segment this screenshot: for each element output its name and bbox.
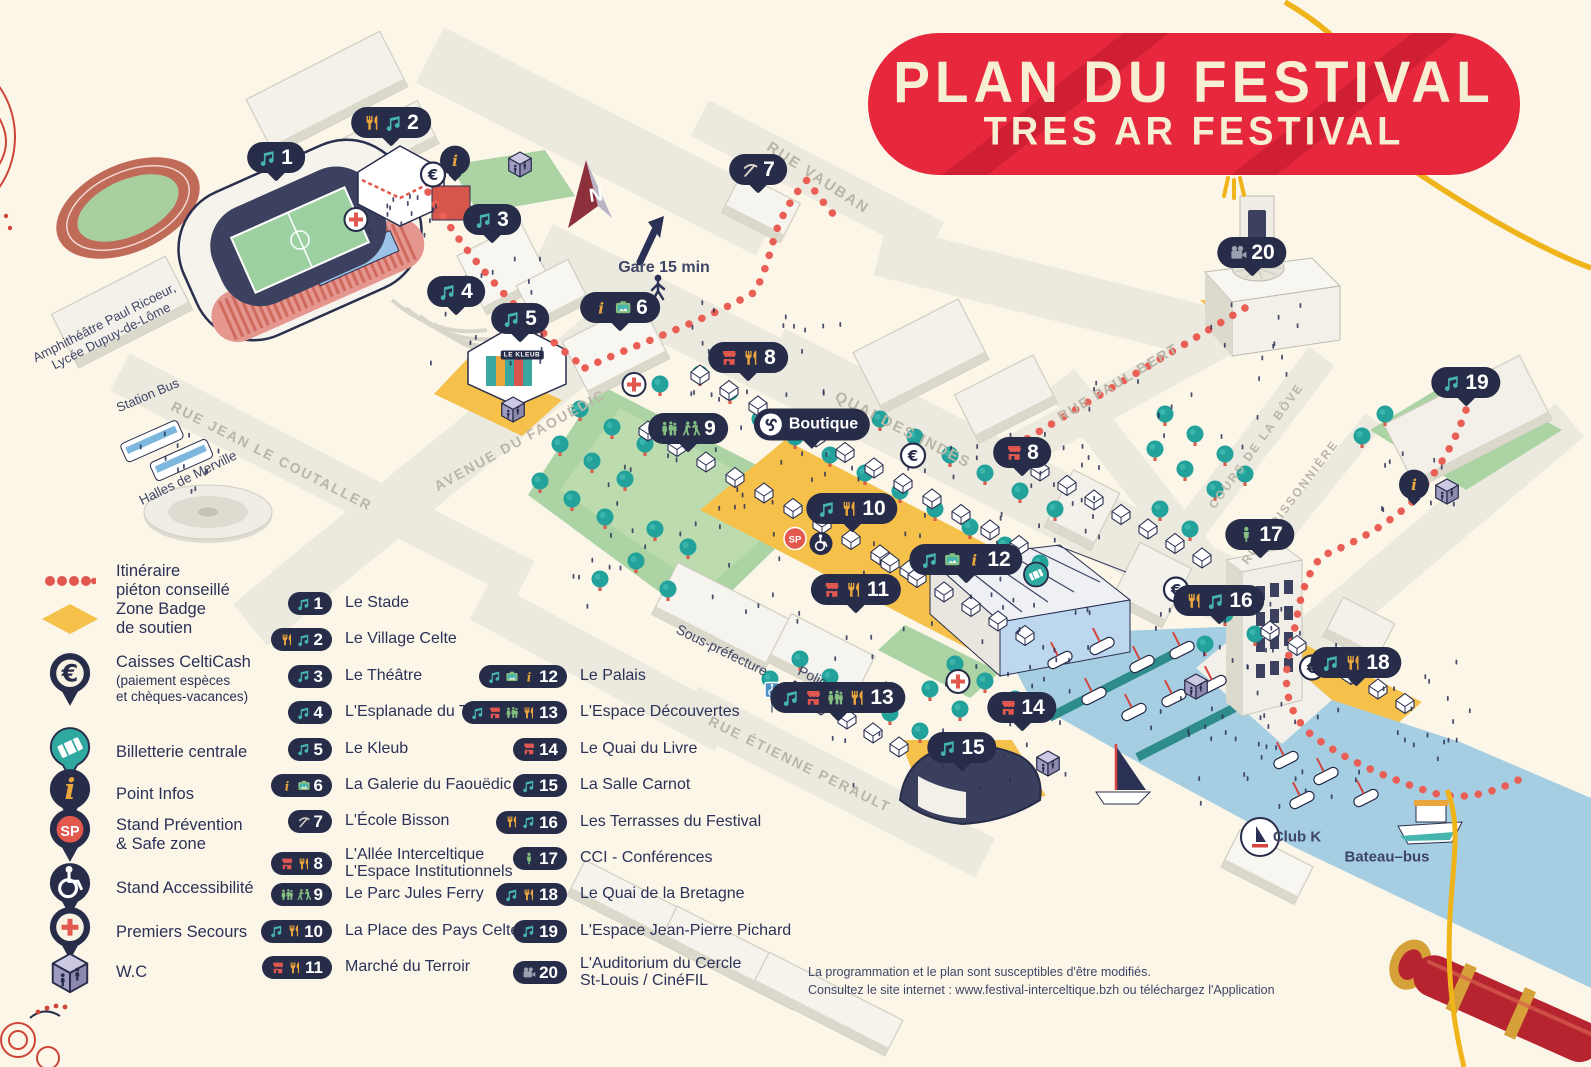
location-pill: 16 <box>496 811 567 834</box>
location-number: 3 <box>314 668 323 685</box>
location-label: Le Quai du Livre <box>580 741 697 758</box>
info-icon: i <box>280 779 294 793</box>
people-icon <box>660 420 678 438</box>
marker-number: 20 <box>1251 242 1274 263</box>
map-marker-18: 18 <box>1310 647 1401 678</box>
map-marker-2: 2 <box>351 107 431 138</box>
location-number: 5 <box>314 741 323 758</box>
location-number: 8 <box>314 855 323 872</box>
music-icon <box>782 689 800 707</box>
location-list-item-19: 19L'Espace Jean-Pierre Pichard <box>455 920 791 943</box>
title-line2: TRES AR FESTIVAL <box>984 109 1405 154</box>
marker-number: 7 <box>763 159 775 180</box>
gallery-icon <box>614 299 632 317</box>
legend-item-sp-pin: SPStand Prévention& Safe zone <box>38 808 243 862</box>
map-badge-wc <box>505 150 535 185</box>
music-icon <box>818 500 836 518</box>
shop-icon <box>720 349 738 367</box>
place-label: Bateau–bus <box>1344 848 1429 865</box>
legend-label: Itinérairepiéton conseillé <box>116 562 230 601</box>
location-pill: 17 <box>513 847 567 870</box>
location-pill: 19 <box>513 920 567 943</box>
fork-icon <box>742 349 760 367</box>
svg-text:i: i <box>284 779 288 793</box>
people-icon <box>280 888 294 902</box>
legend-label: Caisses CeltiCash(paiement espèceset chè… <box>116 653 251 704</box>
shop-icon <box>488 706 502 720</box>
legend-label: Billetterie centrale <box>116 743 247 762</box>
music-icon <box>297 597 311 611</box>
location-number: 6 <box>314 777 323 794</box>
fork-icon <box>1344 654 1362 672</box>
music-icon <box>475 211 493 229</box>
music-icon <box>385 114 403 132</box>
marker-number: 16 <box>1229 590 1252 611</box>
marker-number: 8 <box>764 347 776 368</box>
legend-item-euro-pin: €Caisses CeltiCash(paiement espèceset ch… <box>38 652 251 706</box>
location-label: Le Stade <box>345 595 409 612</box>
title-banner: PLAN DU FESTIVAL TRES AR FESTIVAL <box>868 33 1520 175</box>
location-number: 1 <box>314 595 323 612</box>
svg-text:i: i <box>971 551 977 568</box>
music-icon <box>921 551 939 569</box>
location-label: Le Palais <box>580 668 646 685</box>
location-label: Marché du Terroir <box>345 959 470 976</box>
location-number: 19 <box>539 923 558 940</box>
map-marker-14: 14 <box>987 692 1056 723</box>
location-pill: 20 <box>513 961 567 984</box>
euro-pin-icon: € <box>38 652 102 706</box>
map-marker-8: 8 <box>708 342 788 373</box>
fork-icon <box>297 857 311 871</box>
info-icon: i <box>592 299 610 317</box>
people-icon <box>826 689 844 707</box>
marker-number: 3 <box>497 209 509 230</box>
gallery-icon <box>505 670 519 684</box>
location-pill: 5 <box>288 738 332 761</box>
legend-label: Point Infos <box>116 785 194 804</box>
location-list-item-18: 18Le Quai de la Bretagne <box>455 883 745 906</box>
location-pill: 1 <box>288 592 332 615</box>
place-label: Club K <box>1273 828 1321 845</box>
pickaxe-icon <box>741 161 759 179</box>
shop-icon <box>1005 444 1023 462</box>
map-marker-13: 13 <box>770 682 905 713</box>
location-number: 7 <box>314 813 323 830</box>
map-badge-wc <box>1181 672 1211 707</box>
fork-icon <box>1185 592 1203 610</box>
marker-number: 19 <box>1465 372 1488 393</box>
location-number: 20 <box>539 964 558 981</box>
location-list-item-7: 7L'École Bisson <box>246 810 449 833</box>
legend-label: Stand Prévention& Safe zone <box>116 816 243 855</box>
location-pill: 2 <box>271 628 332 651</box>
marker-number: 12 <box>987 549 1010 570</box>
location-label: La Salle Carnot <box>580 777 690 794</box>
people-icon <box>505 706 519 720</box>
location-list-item-2: 2Le Village Celte <box>246 628 457 651</box>
map-badge-wheel <box>809 532 833 561</box>
legend-label: Premiers Secours <box>116 923 247 942</box>
location-list-item-3: 3Le Théâtre <box>246 665 422 688</box>
svg-text:€: € <box>907 447 918 465</box>
fork-icon <box>845 581 863 599</box>
svg-text:i: i <box>1411 476 1417 493</box>
fork-icon <box>848 689 866 707</box>
location-label: Le Quai de la Bretagne <box>580 886 745 903</box>
location-number: 12 <box>539 668 558 685</box>
svg-text:SP: SP <box>789 535 802 546</box>
svg-text:i: i <box>527 670 531 684</box>
location-list-item-20: 20L'Auditorium du CercleSt-Louis / CinéF… <box>455 956 741 990</box>
map-badge-wc <box>1033 749 1063 784</box>
map-marker-15: 15 <box>927 732 996 763</box>
music-icon <box>522 779 536 793</box>
location-list-item-14: 14Le Quai du Livre <box>455 738 697 761</box>
map-marker-19: 19 <box>1431 367 1500 398</box>
svg-text:SP: SP <box>60 824 80 840</box>
music-icon <box>270 924 284 938</box>
map-marker-8: 8 <box>993 437 1051 468</box>
music-icon <box>488 670 502 684</box>
location-list-item-11: 11Marché du Terroir <box>246 956 470 979</box>
map-badge-sp: SP <box>783 527 807 556</box>
marker-number: 17 <box>1259 524 1282 545</box>
fork-icon <box>522 888 536 902</box>
place-label: Gare 15 min <box>618 259 710 277</box>
location-list-item-5: 5Le Kleub <box>246 738 408 761</box>
map-marker-11: 11 <box>811 574 901 605</box>
building-sign: LE KLEUB <box>501 351 544 360</box>
sp-pin-icon: SP <box>38 808 102 862</box>
music-icon <box>1322 654 1340 672</box>
fork-icon <box>280 633 294 647</box>
map-badge-wc <box>1432 477 1462 512</box>
gallery-icon <box>943 551 961 569</box>
filmcam-icon <box>1229 244 1247 262</box>
marker-number: 6 <box>636 297 648 318</box>
gallery-icon <box>297 779 311 793</box>
shop-icon <box>280 857 294 871</box>
location-number: 14 <box>539 741 558 758</box>
svg-text:€: € <box>427 166 438 184</box>
location-pill: 8 <box>271 852 332 875</box>
location-list-item-13: 13L'Espace Découvertes <box>455 701 740 724</box>
marker-number: 9 <box>704 418 716 439</box>
location-number: 10 <box>304 923 323 940</box>
badge-zone-icon <box>38 603 102 635</box>
map-badge-plus <box>945 669 971 700</box>
svg-text:i: i <box>65 772 76 806</box>
triskel-icon <box>759 412 783 436</box>
map-badge-wc <box>498 395 528 430</box>
marker-number: 5 <box>525 308 537 329</box>
location-number: 17 <box>539 850 558 867</box>
music-icon <box>297 706 311 720</box>
legend-label: W.C <box>116 963 147 982</box>
boutique-label: Boutique <box>789 415 858 433</box>
marker-number: 18 <box>1366 652 1389 673</box>
fork-icon <box>505 815 519 829</box>
legend-item-dotted-path: Itinérairepiéton conseillé <box>38 562 230 601</box>
marker-number: 1 <box>281 147 293 168</box>
music-icon <box>503 310 521 328</box>
location-pill: 13 <box>462 701 567 724</box>
location-pill: 7 <box>288 810 332 833</box>
location-number: 4 <box>314 704 323 721</box>
map-marker-4: 4 <box>427 276 485 307</box>
shop-icon <box>999 699 1017 717</box>
shop-icon <box>271 961 285 975</box>
location-pill: 3 <box>288 665 332 688</box>
person-icon <box>522 852 536 866</box>
location-list-item-9: 9Le Parc Jules Ferry <box>246 883 484 906</box>
map-marker-20: 20 <box>1217 237 1286 268</box>
svg-text:€: € <box>61 660 79 688</box>
location-number: 18 <box>539 886 558 903</box>
shop-icon <box>823 581 841 599</box>
shop-icon <box>804 689 822 707</box>
footer-line1: La programmation et le plan sont suscept… <box>808 963 1275 981</box>
map-marker-7: 7 <box>729 154 787 185</box>
music-icon <box>471 706 485 720</box>
location-list-item-15: 15La Salle Carnot <box>455 774 690 797</box>
marker-number: 13 <box>870 687 893 708</box>
music-icon <box>1207 592 1225 610</box>
marker-number: 10 <box>862 498 885 519</box>
marker-number: 4 <box>461 281 473 302</box>
music-icon <box>297 633 311 647</box>
festival-map-poster: N PLAN DU FESTIVAL TRES AR FESTIVAL RUE … <box>0 0 1591 1067</box>
map-marker-16: 16 <box>1173 585 1264 616</box>
fork-icon <box>287 924 301 938</box>
map-badge-plus <box>621 372 647 403</box>
location-label: Le Village Celte <box>345 631 457 648</box>
map-marker-12: i12 <box>909 544 1022 575</box>
filmcam-icon <box>522 966 536 980</box>
location-label: L'École Bisson <box>345 813 449 830</box>
location-pill: 9 <box>271 883 332 906</box>
location-label: Les Terrasses du Festival <box>580 814 761 831</box>
info-icon: i <box>965 551 983 569</box>
legend-label: Stand Accessibilité <box>116 879 254 898</box>
location-number: 15 <box>539 777 558 794</box>
map-badge-ticket <box>1023 562 1049 593</box>
footer-note: La programmation et le plan sont suscept… <box>808 963 1275 999</box>
location-label: Le Théâtre <box>345 668 422 685</box>
pickaxe-icon <box>297 815 311 829</box>
music-icon <box>505 888 519 902</box>
location-number: 16 <box>539 814 558 831</box>
svg-text:N: N <box>588 184 605 207</box>
map-marker-9: 9 <box>648 413 728 444</box>
location-number: 2 <box>314 631 323 648</box>
info-point-bubble: i <box>440 146 470 176</box>
location-pill: 18 <box>496 883 567 906</box>
location-list-item-1: 1Le Stade <box>246 592 409 615</box>
location-pill: 14 <box>513 738 567 761</box>
fork-icon <box>288 961 302 975</box>
location-list-item-12: i12Le Palais <box>455 665 646 688</box>
fork-icon <box>840 500 858 518</box>
footer-line2: Consultez le site internet : www.festiva… <box>808 981 1275 999</box>
marker-number: 8 <box>1027 442 1039 463</box>
marker-number: 11 <box>867 579 889 600</box>
svg-text:i: i <box>452 152 458 169</box>
marker-number: 14 <box>1021 697 1044 718</box>
dotted-path-icon <box>38 574 102 588</box>
map-marker-17: 17 <box>1225 519 1294 550</box>
map-marker-10: 10 <box>806 493 897 524</box>
wc-cube-icon <box>38 950 102 996</box>
music-icon <box>297 669 311 683</box>
location-pill: i6 <box>271 774 332 797</box>
location-pill: 15 <box>513 774 567 797</box>
map-marker-6: i6 <box>580 292 660 323</box>
map-marker-5: 5 <box>491 303 549 334</box>
music-icon <box>439 283 457 301</box>
legend-label: Zone Badgede soutien <box>116 600 206 639</box>
location-number: 13 <box>539 704 558 721</box>
location-label: L'Auditorium du CercleSt-Louis / CinéFIL <box>580 956 741 990</box>
svg-text:i: i <box>598 299 604 316</box>
boutique-pill: Boutique <box>754 408 870 440</box>
fork-icon <box>363 114 381 132</box>
location-label: Le Kleub <box>345 741 408 758</box>
info-icon: i <box>522 670 536 684</box>
location-pill: 10 <box>261 920 332 943</box>
location-label: L'Espace Découvertes <box>580 704 740 721</box>
music-icon <box>1443 374 1461 392</box>
location-pill: 4 <box>288 701 332 724</box>
location-pill: 11 <box>262 956 332 979</box>
music-icon <box>939 739 957 757</box>
music-icon <box>522 924 536 938</box>
shop-icon <box>522 742 536 756</box>
map-marker-1: 1 <box>247 142 305 173</box>
location-label: L'Espace Jean-Pierre Pichard <box>580 923 791 940</box>
map-marker-3: 3 <box>463 204 521 235</box>
location-label: CCI - Conférences <box>580 850 713 867</box>
info-point-bubble: i <box>1399 470 1429 500</box>
map-badge-euro: € <box>900 442 927 474</box>
marker-number: 2 <box>407 112 419 133</box>
marker-number: 15 <box>961 737 984 758</box>
legend-item-badge-zone: Zone Badgede soutien <box>38 600 206 639</box>
music-icon <box>297 742 311 756</box>
map-badge-plus <box>343 207 369 238</box>
location-pill: i12 <box>479 665 567 688</box>
dancers-icon <box>682 420 700 438</box>
person-icon <box>1237 526 1255 544</box>
location-list-item-16: 16Les Terrasses du Festival <box>455 811 761 834</box>
dancers-icon <box>297 888 311 902</box>
location-number: 11 <box>305 959 323 976</box>
fork-icon <box>522 706 536 720</box>
music-icon <box>259 149 277 167</box>
location-list-item-17: 17CCI - Conférences <box>455 847 713 870</box>
music-icon <box>522 815 536 829</box>
title-line1: PLAN DU FESTIVAL <box>893 53 1494 112</box>
legend-item-wc-cube: W.C <box>38 950 147 996</box>
location-number: 9 <box>314 886 323 903</box>
legend-sublabel: (paiement espèceset chèques-vacances) <box>116 673 251 705</box>
